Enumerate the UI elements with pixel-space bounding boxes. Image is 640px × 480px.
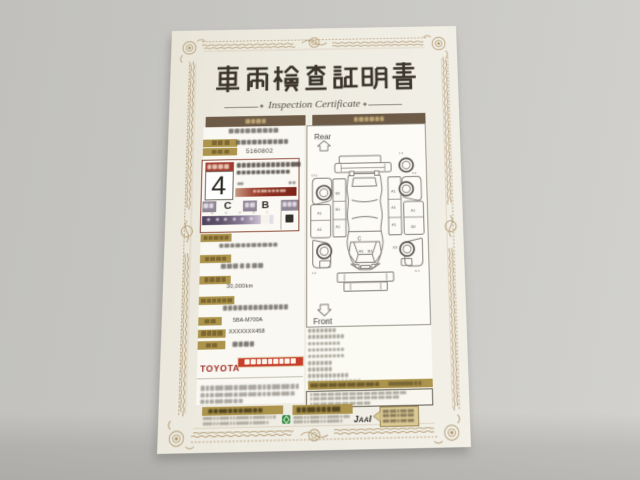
svg-text:A1: A1 [410,208,415,212]
svg-text:XX: XX [392,245,398,249]
svg-text:A1: A1 [317,228,322,232]
svg-text:5 3: 5 3 [415,269,420,273]
svg-text:5 3: 5 3 [412,171,417,175]
svg-text:A1: A1 [391,205,396,209]
svg-text:Rear: Rear [314,132,331,142]
svg-text:B1: B1 [367,249,372,253]
svg-text:A1: A1 [335,225,340,229]
svg-text:1 3: 1 3 [399,151,404,155]
svg-text:B2: B2 [335,191,340,195]
svg-text:A1: A1 [391,189,396,193]
svg-text:C4 3: C4 3 [311,173,318,177]
svg-text:B1: B1 [335,207,340,211]
svg-text:A1: A1 [317,211,322,215]
svg-text:A1: A1 [358,249,363,253]
svg-text:Front: Front [313,316,332,326]
svg-text:1 3: 1 3 [311,271,316,275]
svg-text:B2: B2 [411,225,416,229]
svg-text:A1: A1 [391,223,396,227]
